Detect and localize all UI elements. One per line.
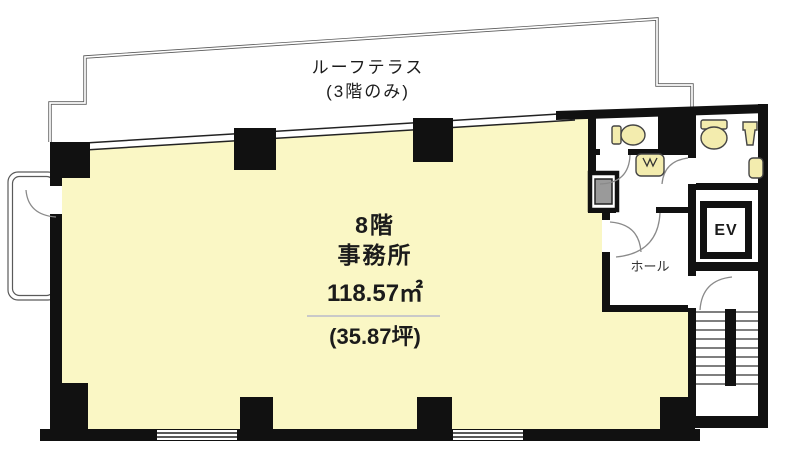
office-area-tsubo-label: (35.87坪): [329, 324, 421, 349]
column: [660, 397, 695, 432]
toilet1-bowl: [621, 125, 645, 145]
elevator: EV: [700, 201, 752, 259]
floorplan: EV ルーフテラス (3階のみ): [0, 0, 800, 459]
stair-landing-door-arc: [700, 277, 732, 310]
bottom-window-1: [157, 430, 237, 440]
toilet2-sink: [749, 158, 763, 178]
hall-bottom-wall: [602, 305, 692, 312]
bottom-wall: [40, 429, 700, 441]
hall-door-opening: [616, 207, 656, 213]
office-hall-door-arc: [610, 222, 641, 252]
hall-door-arc: [616, 213, 660, 257]
urinal: [743, 122, 757, 145]
column: [52, 383, 88, 433]
office-hall-door-opening: [602, 220, 610, 252]
hall-label: ホール: [630, 259, 669, 274]
column: [52, 142, 90, 178]
office-room: [56, 118, 692, 432]
toilet1-tank: [612, 126, 621, 144]
column: [240, 397, 273, 432]
toilet1-door-opening: [600, 149, 628, 155]
office-area-m2-label: 118.57㎡: [327, 279, 423, 307]
toilet2-bottom-wall: [692, 183, 762, 190]
sk-closet: [590, 173, 617, 210]
balcony-outline-inner: [13, 177, 54, 296]
stairwell-bottom-wall: [688, 416, 768, 428]
column: [413, 118, 453, 162]
floorplan-drawing: EV ルーフテラス (3階のみ): [0, 0, 800, 459]
washbasin: [636, 154, 664, 176]
terrace-label-line1: ルーフテラス: [312, 58, 425, 77]
stairs: [696, 309, 758, 386]
office-floor-label: 8階: [355, 212, 395, 238]
ev-label: EV: [714, 222, 737, 239]
toilet2-bowl: [701, 127, 727, 149]
ev-bottom-wall: [688, 262, 768, 271]
duct-shaft: [658, 112, 688, 150]
stair-rail: [725, 309, 736, 386]
toilet2-door-opening: [688, 158, 696, 184]
stair-landing-door-opening: [688, 276, 696, 308]
column: [417, 397, 452, 432]
terrace-label-line2: (3階のみ): [326, 82, 410, 101]
column: [234, 128, 276, 170]
bottom-window-2: [453, 430, 523, 440]
office-use-label: 事務所: [338, 242, 413, 268]
balcony-door-opening: [50, 186, 62, 214]
toilet2-door-arc: [662, 158, 688, 184]
